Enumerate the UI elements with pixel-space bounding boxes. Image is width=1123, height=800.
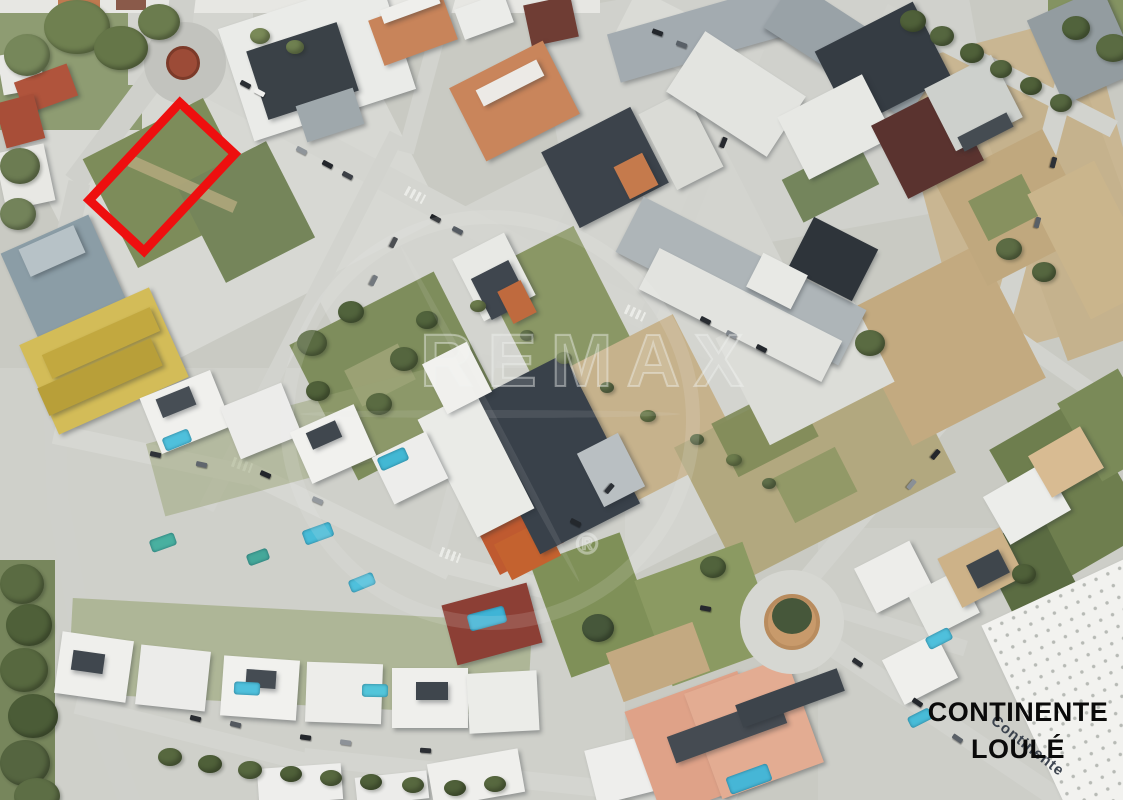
villa [466, 670, 539, 734]
tree [470, 300, 486, 312]
tree [366, 393, 392, 415]
tree [320, 770, 342, 786]
tree [280, 766, 302, 782]
tree [1020, 77, 1042, 95]
tree [600, 382, 614, 393]
tree [8, 694, 58, 738]
tree [250, 28, 270, 44]
tree [930, 26, 954, 46]
edge-bit [116, 0, 146, 10]
tree [158, 748, 182, 766]
tree [416, 311, 438, 329]
tree [286, 40, 304, 54]
tree [338, 301, 364, 323]
tree [198, 755, 222, 773]
tree [640, 410, 656, 422]
tree [138, 4, 180, 40]
tree [855, 330, 885, 356]
car [420, 748, 431, 754]
tree [360, 774, 382, 790]
tree [0, 148, 40, 184]
tree [0, 648, 48, 692]
tree [582, 614, 614, 642]
pool [362, 684, 388, 697]
tree [238, 761, 262, 779]
tree [990, 60, 1012, 78]
tree [556, 352, 572, 364]
tree [6, 604, 52, 646]
location-label-line2: LOULÉ [912, 731, 1123, 768]
tree [402, 777, 424, 793]
tree [690, 434, 704, 445]
roundabout-center [166, 46, 200, 80]
pool [234, 681, 261, 695]
tree [1032, 262, 1056, 282]
tree [390, 347, 418, 371]
tree [1012, 564, 1036, 584]
tree [4, 34, 50, 76]
villa-dark-roof [416, 682, 448, 700]
tree [306, 381, 330, 401]
tree [444, 780, 466, 796]
tree [1096, 34, 1123, 62]
tree [996, 238, 1022, 260]
tree [726, 454, 742, 466]
tree [900, 10, 926, 32]
tree [0, 564, 44, 604]
villa [135, 645, 211, 712]
satellite-map: REMAX ® Continente CONTINENTE LOULÉ [0, 0, 1123, 800]
tree [94, 26, 148, 70]
tree [762, 478, 776, 489]
tree [484, 776, 506, 792]
location-label: CONTINENTE LOULÉ [912, 694, 1123, 768]
tree [960, 43, 984, 63]
tree [520, 330, 534, 341]
tree [700, 556, 726, 578]
tree [297, 330, 327, 356]
villa-dark-roof [71, 650, 105, 674]
location-label-line1: CONTINENTE [912, 694, 1123, 731]
roundabout-tree [772, 598, 812, 634]
tree [0, 198, 36, 230]
tree [1062, 16, 1090, 40]
tree [1050, 94, 1072, 112]
building [454, 0, 514, 40]
